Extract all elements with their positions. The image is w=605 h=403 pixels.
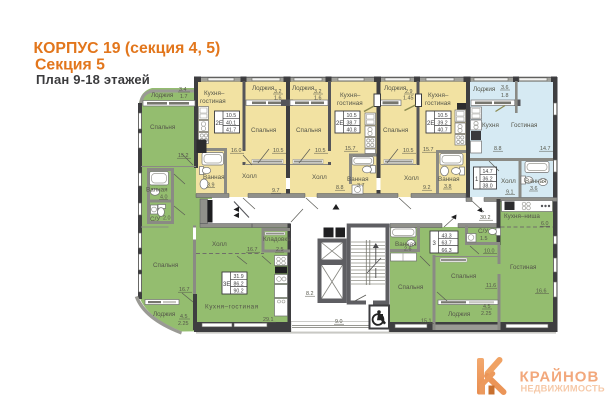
svg-text:10.5: 10.5: [226, 113, 236, 119]
svg-text:1.45: 1.45: [403, 96, 414, 102]
svg-text:40.7: 40.7: [438, 128, 448, 134]
svg-text:Кухня–: Кухня–: [428, 92, 449, 99]
svg-text:1.7: 1.7: [180, 94, 188, 100]
svg-text:86.2: 86.2: [234, 281, 244, 287]
svg-text:Лоджия: Лоджия: [252, 85, 274, 92]
svg-text:Ванная: Ванная: [203, 174, 225, 181]
svg-text:1.6: 1.6: [314, 96, 322, 102]
svg-text:38.0: 38.0: [483, 184, 493, 190]
svg-text:2.6: 2.6: [404, 247, 412, 253]
svg-text:Холл: Холл: [212, 241, 227, 248]
svg-text:Спальня: Спальня: [296, 127, 321, 134]
svg-text:3Е: 3Е: [223, 282, 230, 288]
svg-text:2Е: 2Е: [427, 121, 434, 127]
svg-text:2Е: 2Е: [216, 121, 223, 127]
svg-text:41.7: 41.7: [226, 128, 236, 134]
svg-text:Кладовка: Кладовка: [263, 236, 291, 243]
svg-text:Ванная: Ванная: [525, 178, 547, 185]
svg-text:39.2: 39.2: [438, 120, 448, 126]
svg-text:Лоджия: Лоджия: [292, 85, 314, 92]
svg-text:10.5: 10.5: [347, 113, 357, 119]
svg-text:Ванная: Ванная: [146, 187, 168, 194]
svg-text:2.25: 2.25: [178, 321, 189, 327]
svg-text:Спальня: Спальня: [153, 262, 178, 269]
svg-text:90.2: 90.2: [234, 289, 244, 295]
svg-text:гостиная: гостиная: [425, 100, 451, 107]
svg-text:3.7: 3.7: [357, 183, 365, 189]
svg-text:Кухня–: Кухня–: [204, 90, 225, 97]
svg-text:С/У: С/У: [150, 216, 161, 223]
svg-text:Холл: Холл: [404, 175, 419, 182]
svg-text:КОРПУС 19 (секция 4, 5): КОРПУС 19 (секция 4, 5): [34, 40, 221, 57]
svg-text:1.6: 1.6: [274, 96, 282, 102]
svg-text:36.2: 36.2: [483, 176, 493, 182]
svg-text:Холл: Холл: [501, 178, 516, 185]
svg-text:Спальня: Спальня: [398, 284, 423, 291]
svg-text:гостиная: гостиная: [200, 98, 226, 105]
svg-text:1.8: 1.8: [501, 93, 509, 99]
svg-text:31.9: 31.9: [234, 274, 244, 280]
svg-text:Секция 5: Секция 5: [35, 57, 105, 74]
svg-text:НЕДВИЖИМОСТЬ: НЕДВИЖИМОСТЬ: [521, 383, 605, 393]
svg-text:Гостиная: Гостиная: [510, 264, 536, 271]
svg-text:Кухня: Кухня: [482, 122, 499, 129]
svg-text:План 9-18 этажей: План 9-18 этажей: [36, 72, 150, 87]
svg-text:Спальня: Спальня: [383, 127, 408, 134]
svg-text:Кухня–гостиная: Кухня–гостиная: [205, 304, 259, 311]
svg-text:66.3: 66.3: [442, 248, 452, 254]
svg-text:Спальня: Спальня: [451, 273, 476, 280]
svg-text:1.5: 1.5: [480, 236, 488, 242]
svg-text:Гостиная: Гостиная: [511, 122, 537, 129]
svg-text:Ванная: Ванная: [438, 176, 460, 183]
svg-text:Кухня–: Кухня–: [340, 92, 361, 99]
svg-text:43.3: 43.3: [442, 233, 452, 239]
svg-text:Холл: Холл: [242, 173, 257, 180]
svg-text:2Е: 2Е: [336, 121, 343, 127]
svg-text:Лоджия: Лоджия: [153, 311, 175, 318]
svg-text:Спальня: Спальня: [150, 124, 175, 131]
svg-text:Лоджия: Лоджия: [384, 85, 406, 92]
svg-text:Лоджия: Лоджия: [151, 92, 173, 99]
svg-text:Ванная: Ванная: [347, 176, 369, 183]
svg-text:Холл: Холл: [312, 174, 327, 181]
svg-text:40.8: 40.8: [347, 128, 357, 134]
svg-text:2.25: 2.25: [481, 311, 492, 317]
svg-text:10.5: 10.5: [438, 113, 448, 119]
svg-text:40.1: 40.1: [226, 120, 236, 126]
svg-text:Спальня: Спальня: [251, 127, 276, 134]
svg-text:гостиная: гостиная: [337, 100, 363, 107]
svg-text:Лоджия: Лоджия: [448, 311, 470, 318]
svg-text:2.0: 2.0: [163, 216, 171, 222]
svg-text:14.7: 14.7: [483, 169, 493, 175]
svg-text:38.7: 38.7: [347, 120, 357, 126]
svg-text:С/У: С/У: [478, 228, 489, 235]
svg-text:Лоджия: Лоджия: [473, 86, 495, 93]
svg-text:63.7: 63.7: [442, 241, 452, 247]
svg-text:Кухня–ниша: Кухня–ниша: [504, 213, 540, 220]
